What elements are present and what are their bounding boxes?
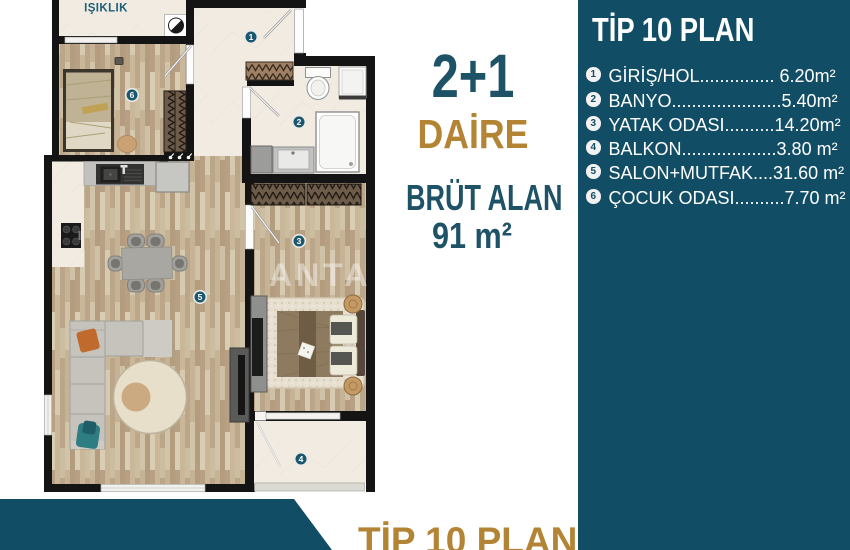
svg-text:IŞIKLIK: IŞIKLIK	[84, 3, 128, 15]
svg-text:3: 3	[297, 236, 302, 246]
svg-text:6: 6	[130, 90, 135, 100]
svg-text:4: 4	[299, 454, 304, 464]
svg-text:2: 2	[297, 117, 302, 127]
svg-text:5: 5	[198, 292, 203, 302]
svg-text:1: 1	[249, 32, 254, 42]
